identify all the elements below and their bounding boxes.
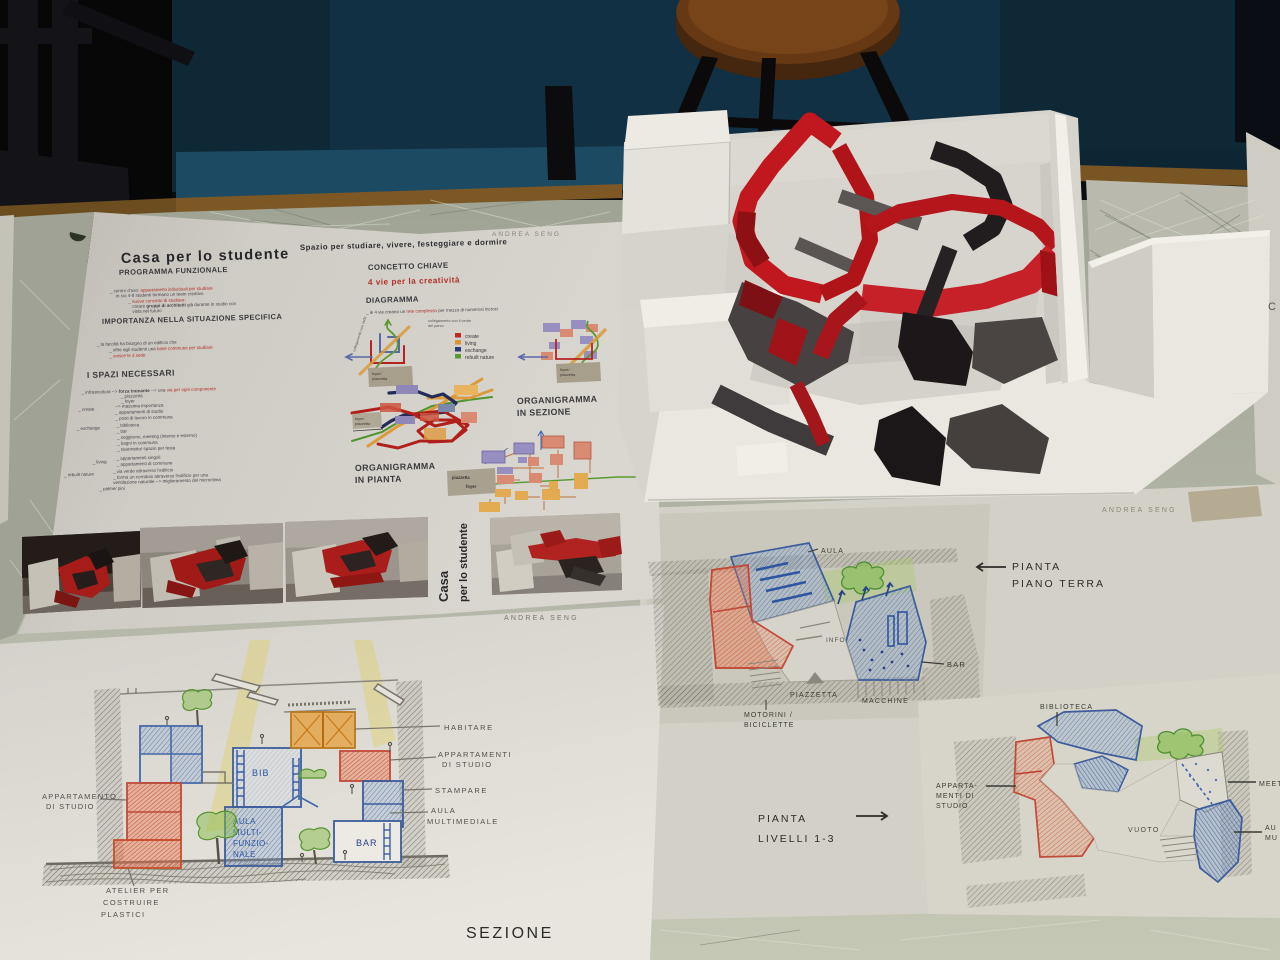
svg-text:create: create — [465, 334, 479, 340]
svg-text:PLASTICI: PLASTICI — [101, 910, 146, 919]
svg-text:MOTORINI /: MOTORINI / — [744, 712, 793, 719]
svg-text:vista nel futuro: vista nel futuro — [132, 308, 162, 314]
svg-text:collegamento con il verde: collegamento con il verde — [428, 319, 471, 323]
svg-text:DI STUDIO: DI STUDIO — [46, 802, 95, 811]
svg-text:_ create: _ create — [77, 407, 95, 412]
svg-text:PIANO TERRA: PIANO TERRA — [1012, 578, 1105, 590]
svg-text:piazzetta: piazzetta — [355, 422, 371, 426]
svg-text:INFO: INFO — [826, 637, 846, 644]
svg-text:STUDIO: STUDIO — [936, 803, 968, 810]
svg-text:C: C — [1268, 301, 1276, 313]
svg-text:living: living — [465, 341, 477, 347]
svg-text:BIB: BIB — [252, 768, 270, 778]
svg-text:piazzetta: piazzetta — [372, 377, 388, 381]
svg-text:foyer/: foyer/ — [560, 368, 570, 372]
svg-text:foyer/: foyer/ — [372, 372, 382, 376]
svg-text:piazzetta: piazzetta — [452, 475, 470, 480]
svg-text:ATELIER PER: ATELIER PER — [106, 886, 170, 895]
svg-text:IN PIANTA: IN PIANTA — [355, 474, 402, 485]
svg-text:AULA: AULA — [821, 548, 844, 555]
svg-text:VUOTO: VUOTO — [1128, 827, 1160, 834]
svg-text:piazzetta: piazzetta — [560, 373, 576, 377]
svg-text:BIBLIOTECA: BIBLIOTECA — [1040, 704, 1093, 711]
svg-text:IN SEZIONE: IN SEZIONE — [517, 406, 571, 417]
svg-text:ANDREA SENG: ANDREA SENG — [492, 231, 561, 238]
svg-text:APPARTA-: APPARTA- — [936, 783, 978, 790]
svg-text:MU: MU — [1265, 835, 1278, 842]
svg-text:_ unisce le 3 sede: _ unisce le 3 sede — [108, 353, 146, 359]
svg-text:AULA: AULA — [431, 806, 456, 815]
svg-text:HABITARE: HABITARE — [444, 723, 494, 732]
svg-text:FUNZIO-: FUNZIO- — [233, 839, 269, 848]
svg-text:ANDREA SENG: ANDREA SENG — [504, 615, 579, 622]
svg-text:MENTI DI: MENTI DI — [936, 793, 975, 800]
svg-text:_ living: _ living — [92, 459, 108, 464]
svg-text:del parco: del parco — [428, 324, 444, 328]
svg-text:PIANTA: PIANTA — [1012, 561, 1061, 573]
svg-text:PIAZZETTA: PIAZZETTA — [790, 692, 838, 699]
svg-text:LIVELLI 1-3: LIVELLI 1-3 — [758, 833, 835, 845]
svg-text:_ bar: _ bar — [116, 429, 128, 434]
svg-text:Casa: Casa — [436, 570, 451, 602]
svg-text:_ rebuilt nature: _ rebuilt nature — [63, 472, 95, 478]
svg-text:per lo studente: per lo studente — [458, 523, 470, 602]
svg-text:DI STUDIO: DI STUDIO — [442, 760, 493, 769]
svg-text:SEZIONE: SEZIONE — [466, 925, 554, 942]
svg-text:MULTIMEDIALE: MULTIMEDIALE — [427, 817, 499, 826]
svg-text:BAR: BAR — [947, 660, 966, 669]
svg-text:ANDREA SENG: ANDREA SENG — [1102, 507, 1177, 514]
svg-text:BAR: BAR — [356, 838, 378, 848]
svg-text:MEET: MEET — [1259, 781, 1280, 788]
svg-text:APPARTAMENTI: APPARTAMENTI — [438, 750, 512, 759]
svg-text:DIAGRAMMA: DIAGRAMMA — [366, 295, 419, 305]
svg-text:AU: AU — [1265, 825, 1277, 832]
svg-text:exchange: exchange — [465, 348, 487, 354]
svg-text:MACCHINE: MACCHINE — [862, 698, 909, 705]
svg-text:rebuilt nature: rebuilt nature — [465, 355, 494, 361]
svg-text:foyer/: foyer/ — [355, 417, 365, 421]
svg-text:_ biblioteca: _ biblioteca — [116, 422, 140, 428]
svg-text:_ exchange: _ exchange — [76, 425, 101, 431]
svg-text:BICICLETTE: BICICLETTE — [744, 722, 794, 729]
svg-text:COSTRUIRE: COSTRUIRE — [103, 898, 160, 907]
svg-text:foyer: foyer — [466, 484, 477, 489]
svg-text:_ palme/ pini: _ palme/ pini — [98, 486, 125, 492]
svg-text:STAMPARE: STAMPARE — [435, 786, 488, 795]
svg-text:APPARTAMENTO: APPARTAMENTO — [42, 792, 117, 801]
svg-text:PIANTA: PIANTA — [758, 813, 807, 825]
svg-text:NALE: NALE — [233, 850, 256, 859]
